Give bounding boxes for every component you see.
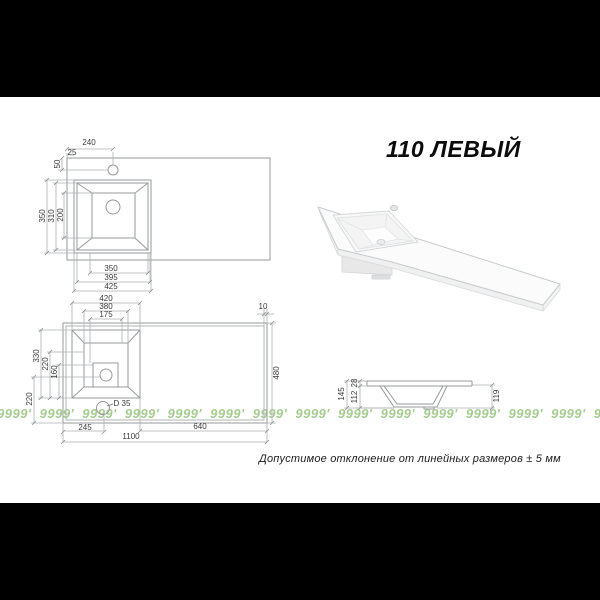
dim-220-label: 220 — [42, 357, 50, 370]
dim-350b-label: 350 — [104, 265, 117, 273]
dim-28-label: 28 — [351, 379, 359, 388]
basin-outer-square — [72, 330, 140, 398]
letterbox-top — [0, 0, 600, 97]
countertop-slab-section — [367, 381, 472, 386]
bottom-view-drawing — [63, 323, 267, 423]
dim-175-label: 175 — [99, 311, 112, 319]
letterbox-bottom — [0, 503, 600, 600]
drain-hole-render — [377, 239, 385, 244]
dim-1100-label: 1100 — [122, 433, 139, 441]
faucet-hole-circle — [97, 402, 110, 415]
dim-240-label: 240 — [82, 139, 95, 147]
dim-350-label: 350 — [39, 209, 47, 222]
countertop-inner-contour — [66, 326, 264, 420]
dim-112-label: 112 — [351, 391, 359, 404]
drawing-sheet: 9999' 9999' 9999' 9999' 9999' 9999' 9999… — [0, 97, 600, 503]
dim-245-label: 245 — [78, 424, 91, 432]
dim-119-label: 119 — [493, 390, 501, 403]
basin-bevel-lines — [72, 330, 140, 398]
dim-10-label: 10 — [259, 303, 268, 311]
dim-640-label: 640 — [193, 423, 206, 431]
dim-200-label: 200 — [57, 208, 65, 221]
dim-160-label: 160 — [51, 365, 59, 378]
dim-330-label: 330 — [33, 349, 41, 362]
faucet-hole-circle — [108, 165, 118, 175]
drain-pipe-stub — [372, 275, 390, 279]
drain-recess-rect — [93, 363, 118, 387]
faucet-hole-render — [390, 205, 397, 210]
drain-hole-circle — [106, 200, 120, 214]
dim-310-label: 310 — [48, 209, 56, 222]
sink-3d-render — [318, 205, 560, 311]
dim-25-label: 25 — [68, 149, 77, 157]
bowl-inner-profile — [384, 386, 443, 404]
dim-50-label: 50 — [54, 160, 62, 169]
countertop-outline — [63, 323, 267, 423]
drain-hole-circle — [100, 369, 112, 381]
drawing-title: 110 ЛЕВЫЙ — [386, 136, 521, 163]
dim-d35-label: D 35 — [114, 400, 131, 408]
dim-145-label: 145 — [338, 387, 346, 400]
countertop-outline — [67, 158, 270, 260]
top-view-drawing — [67, 158, 270, 260]
section-view-drawing — [367, 381, 472, 409]
dim-220b-label: 220 — [26, 392, 34, 405]
dim-425-label: 425 — [104, 283, 117, 291]
dim-395-label: 395 — [104, 274, 117, 282]
dim-480-label: 480 — [273, 366, 281, 379]
tolerance-note: Допустимое отклонение от линейных размер… — [259, 453, 561, 465]
